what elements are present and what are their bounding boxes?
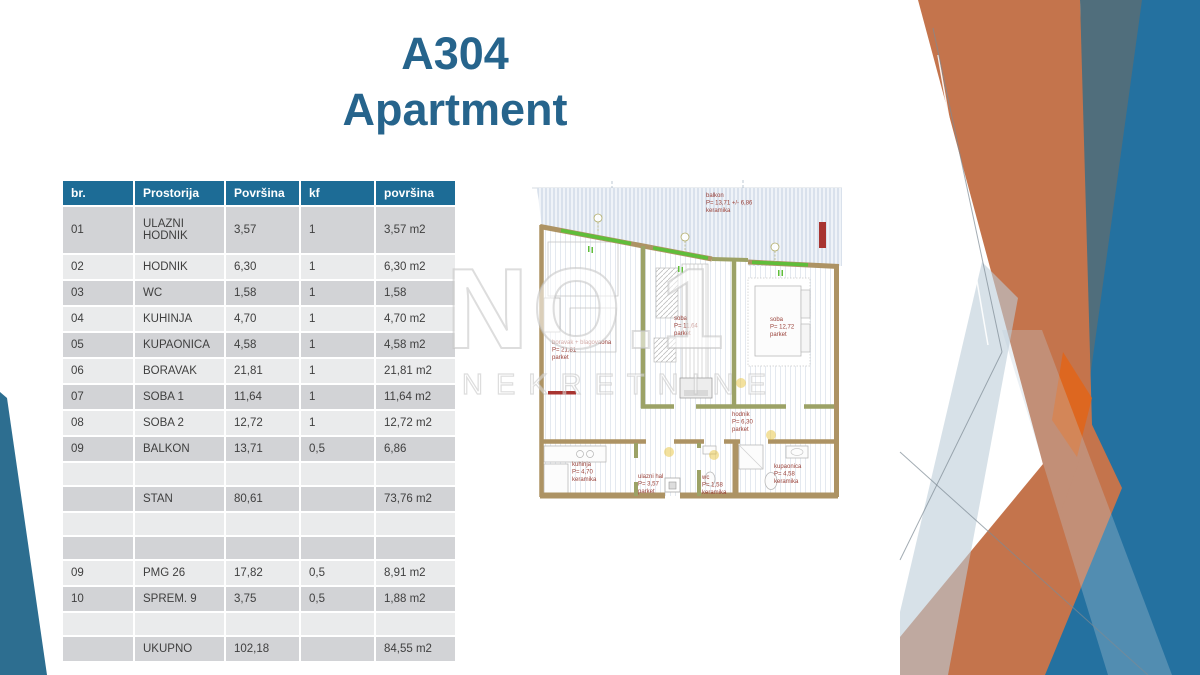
balcony-door-red <box>819 222 826 248</box>
kitchen-counter <box>544 446 606 462</box>
table-cell <box>301 463 374 485</box>
room-name: soba <box>770 317 784 323</box>
wardrobe-hatched <box>654 338 676 362</box>
table-cell: 80,61 <box>226 487 299 511</box>
table-cell: PMG 26 <box>135 561 224 585</box>
table-cell <box>63 463 133 485</box>
window-code-mark <box>588 246 590 252</box>
table-cell: 6,30 m2 <box>376 255 455 279</box>
table-cell: 4,58 m2 <box>376 333 455 357</box>
table-cell: 3,57 m2 <box>376 207 455 253</box>
column-header-br: br. <box>63 181 133 205</box>
table-row: STAN80,6173,76 m2 <box>63 487 455 511</box>
table-cell <box>376 537 455 559</box>
room-name: balkon <box>706 193 724 199</box>
table-cell: 0,5 <box>301 561 374 585</box>
table-cell: KUHINJA <box>135 307 224 331</box>
window-code-mark <box>682 267 684 273</box>
table-cell <box>63 513 133 535</box>
table-cell: 0,5 <box>301 587 374 611</box>
table-row: 10SPREM. 93,750,51,88 m2 <box>63 587 455 611</box>
room-floor: parket <box>638 489 655 495</box>
room-area: P= 21,81 <box>552 348 577 354</box>
window-code-mark <box>778 270 780 276</box>
table-cell: 01 <box>63 207 133 253</box>
table-cell <box>63 487 133 511</box>
table-cell <box>135 513 224 535</box>
table-cell <box>376 513 455 535</box>
table-cell: HODNIK <box>135 255 224 279</box>
table-cell <box>301 487 374 511</box>
light-marker <box>766 430 776 440</box>
table-row: 08SOBA 212,72112,72 m2 <box>63 411 455 435</box>
kitchen-counter <box>544 464 568 494</box>
table-cell: 17,82 <box>226 561 299 585</box>
wardrobe-hatched <box>656 268 678 318</box>
light-marker <box>736 378 746 388</box>
table-cell: 1,58 <box>376 281 455 305</box>
table-row: 01ULAZNI HODNIK3,5713,57 m2 <box>63 207 455 253</box>
room-floor: parket <box>770 332 787 338</box>
table-cell <box>301 613 374 635</box>
table-cell <box>63 637 133 661</box>
table-cell: 03 <box>63 281 133 305</box>
table-cell: WC <box>135 281 224 305</box>
table-cell: STAN <box>135 487 224 511</box>
table-row: UKUPNO102,1884,55 m2 <box>63 637 455 661</box>
room-floor: parket <box>732 427 749 433</box>
table-cell: 21,81 m2 <box>376 359 455 383</box>
table-cell: 6,86 <box>376 437 455 461</box>
table-cell: 1 <box>301 359 374 383</box>
table-row <box>63 613 455 635</box>
right-decoration <box>888 0 1200 675</box>
room-floor: keramika <box>702 490 727 496</box>
table-cell: 0,5 <box>301 437 374 461</box>
column-header-prostorija: Prostorija <box>135 181 224 205</box>
room-area: P= 13,71 +/- 6,86 <box>706 201 753 207</box>
table-cell: 05 <box>63 333 133 357</box>
table-row: 07SOBA 111,64111,64 m2 <box>63 385 455 409</box>
table-body: 01ULAZNI HODNIK3,5713,57 m202HODNIK6,301… <box>63 207 455 661</box>
table-cell <box>226 463 299 485</box>
table-cell <box>376 463 455 485</box>
table-cell: 09 <box>63 437 133 461</box>
table-cell: 4,70 m2 <box>376 307 455 331</box>
table-cell: 11,64 m2 <box>376 385 455 409</box>
table-cell <box>63 613 133 635</box>
cabinet-outline <box>544 298 560 332</box>
table-cell <box>63 537 133 559</box>
table-row: 03WC1,5811,58 <box>63 281 455 305</box>
table-cell: 1 <box>301 411 374 435</box>
room-floor: parket <box>552 355 569 361</box>
table-cell <box>376 613 455 635</box>
table-cell: 1 <box>301 385 374 409</box>
wall-top-step <box>712 259 748 260</box>
room-name: hodnik <box>732 412 751 418</box>
room-area: P= 3,57 <box>638 482 660 488</box>
table-row <box>63 537 455 559</box>
table-cell: 11,64 <box>226 385 299 409</box>
table-cell: 21,81 <box>226 359 299 383</box>
table-cell: 04 <box>63 307 133 331</box>
table-cell: 1 <box>301 207 374 253</box>
room-area: P= 4,58 <box>774 472 796 478</box>
room-area: P= 4,70 <box>572 470 594 476</box>
room-area: P= 12,72 <box>770 325 795 331</box>
table-cell: 08 <box>63 411 133 435</box>
table-cell: 1,88 m2 <box>376 587 455 611</box>
table-cell <box>135 613 224 635</box>
table-row: 06BORAVAK21,81121,81 m2 <box>63 359 455 383</box>
dimension-bar-red <box>548 391 576 395</box>
slide-title: A304 Apartment <box>250 26 660 138</box>
table-cell: 1 <box>301 333 374 357</box>
table-cell: 1 <box>301 307 374 331</box>
room-name: kupaonica <box>774 464 802 470</box>
light-marker <box>664 447 674 457</box>
table-cell: 73,76 m2 <box>376 487 455 511</box>
room-name: boravak + blagovaona <box>552 340 612 346</box>
room-name: kuhinja <box>572 462 592 468</box>
slide: A304 Apartment br. Prostorija Površina k… <box>0 0 1200 675</box>
table-cell: 02 <box>63 255 133 279</box>
light-marker <box>709 450 719 460</box>
table-header-row: br. Prostorija Površina kf površina <box>63 181 455 205</box>
title-line-2: Apartment <box>250 82 660 138</box>
room-name: wc <box>701 475 709 481</box>
room-area: P= 1,58 <box>702 483 724 489</box>
table-row: 09PMG 2617,820,58,91 m2 <box>63 561 455 585</box>
table-cell: 1,58 <box>226 281 299 305</box>
column-header-kf: kf <box>301 181 374 205</box>
bath-sink <box>786 446 808 458</box>
table-cell: SOBA 1 <box>135 385 224 409</box>
table-cell <box>135 537 224 559</box>
table-row: 04KUHINJA4,7014,70 m2 <box>63 307 455 331</box>
table-cell: 06 <box>63 359 133 383</box>
room-area: P= 11,64 <box>674 324 698 330</box>
table-row: 05KUPAONICA4,5814,58 m2 <box>63 333 455 357</box>
room-floor: keramika <box>774 479 799 485</box>
wedge-shape <box>0 392 47 675</box>
table-cell <box>135 463 224 485</box>
table-cell: 102,18 <box>226 637 299 661</box>
entrance-door-marker-inner <box>669 482 676 489</box>
grid-bubble <box>594 214 602 222</box>
area-table: br. Prostorija Površina kf površina 01UL… <box>61 179 457 663</box>
room-floor: parket <box>674 331 691 337</box>
table-cell <box>301 537 374 559</box>
table-cell: KUPAONICA <box>135 333 224 357</box>
room-floor: keramika <box>706 208 731 214</box>
table-row: 09BALKON13,710,56,86 <box>63 437 455 461</box>
table-cell: BALKON <box>135 437 224 461</box>
table-cell: 1 <box>301 281 374 305</box>
title-line-1: A304 <box>250 26 660 82</box>
table-row <box>63 463 455 485</box>
table-cell: SPREM. 9 <box>135 587 224 611</box>
desk-inner <box>684 390 708 396</box>
table-cell: BORAVAK <box>135 359 224 383</box>
column-header-povrsina2: površina <box>376 181 455 205</box>
left-corner-decoration <box>0 385 60 675</box>
room-name: ulazni hal <box>638 474 663 480</box>
table-cell <box>226 613 299 635</box>
table-cell: 6,30 <box>226 255 299 279</box>
table-cell: 8,91 m2 <box>376 561 455 585</box>
pillow <box>801 324 810 352</box>
floor-plan: balkon P= 13,71 +/- 6,86 keramika borava… <box>528 180 846 516</box>
table-cell: 07 <box>63 385 133 409</box>
window-code-mark <box>782 270 784 276</box>
grid-bubble <box>681 233 689 241</box>
table-row <box>63 513 455 535</box>
table-cell: 13,71 <box>226 437 299 461</box>
window-code-mark <box>592 247 594 253</box>
table-cell <box>301 513 374 535</box>
table-row: 02HODNIK6,3016,30 m2 <box>63 255 455 279</box>
table-cell: 3,75 <box>226 587 299 611</box>
table-cell: 84,55 m2 <box>376 637 455 661</box>
table-cell: 12,72 <box>226 411 299 435</box>
table-cell: 10 <box>63 587 133 611</box>
table-cell: 1 <box>301 255 374 279</box>
table-cell: ULAZNI HODNIK <box>135 207 224 253</box>
room-area: P= 6,30 <box>732 420 754 426</box>
table-cell: 09 <box>63 561 133 585</box>
room-floor: keramika <box>572 477 597 483</box>
table-cell: 12,72 m2 <box>376 411 455 435</box>
grid-bubble <box>771 243 779 251</box>
room-name: soba <box>674 316 688 322</box>
window-code-mark <box>678 266 680 272</box>
table-cell: SOBA 2 <box>135 411 224 435</box>
column-header-povrsina: Površina <box>226 181 299 205</box>
table-cell: 3,57 <box>226 207 299 253</box>
table-cell <box>226 513 299 535</box>
table-cell <box>226 537 299 559</box>
table-cell: UKUPNO <box>135 637 224 661</box>
table-cell <box>301 637 374 661</box>
table-cell: 4,58 <box>226 333 299 357</box>
table-cell: 4,70 <box>226 307 299 331</box>
pillow <box>801 290 810 318</box>
